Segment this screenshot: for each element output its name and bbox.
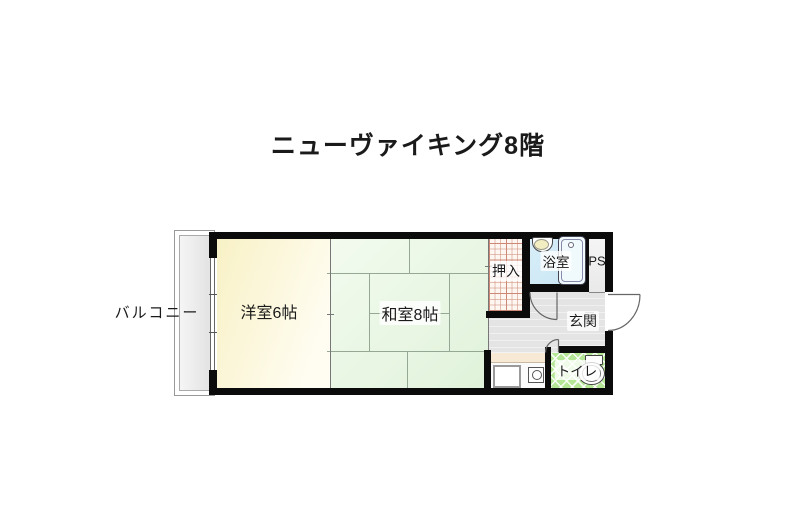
japanese-room-label: 和室8帖 (380, 301, 441, 325)
bathroom-label: 浴室 (541, 251, 572, 271)
entrance-label: 玄関 (567, 311, 599, 331)
toilet-label: トイレ (555, 360, 600, 380)
door-swing-arcs (0, 0, 800, 527)
closet-label: 押入 (490, 261, 522, 281)
floor-plan-page: ニューヴァイキング8階 バルコニー (0, 0, 800, 527)
western-room-label: 洋室6帖 (241, 299, 298, 323)
pipe-space-label: PS (588, 254, 605, 269)
